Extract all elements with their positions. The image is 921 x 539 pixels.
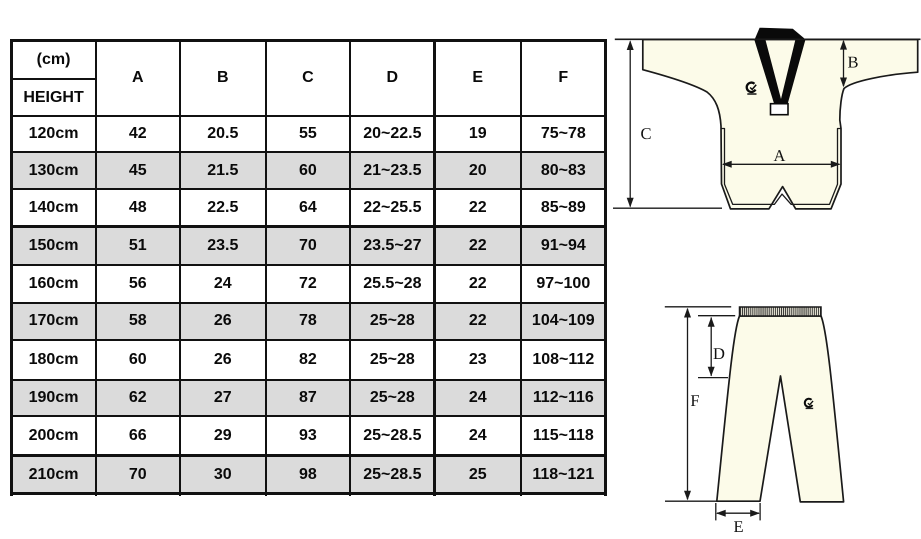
svg-text:E: E bbox=[733, 517, 743, 536]
svg-text:B: B bbox=[847, 53, 858, 72]
svg-text:C: C bbox=[640, 124, 651, 143]
svg-text:F: F bbox=[690, 391, 699, 410]
svg-text:A: A bbox=[774, 146, 786, 165]
svg-text:D: D bbox=[713, 344, 725, 363]
